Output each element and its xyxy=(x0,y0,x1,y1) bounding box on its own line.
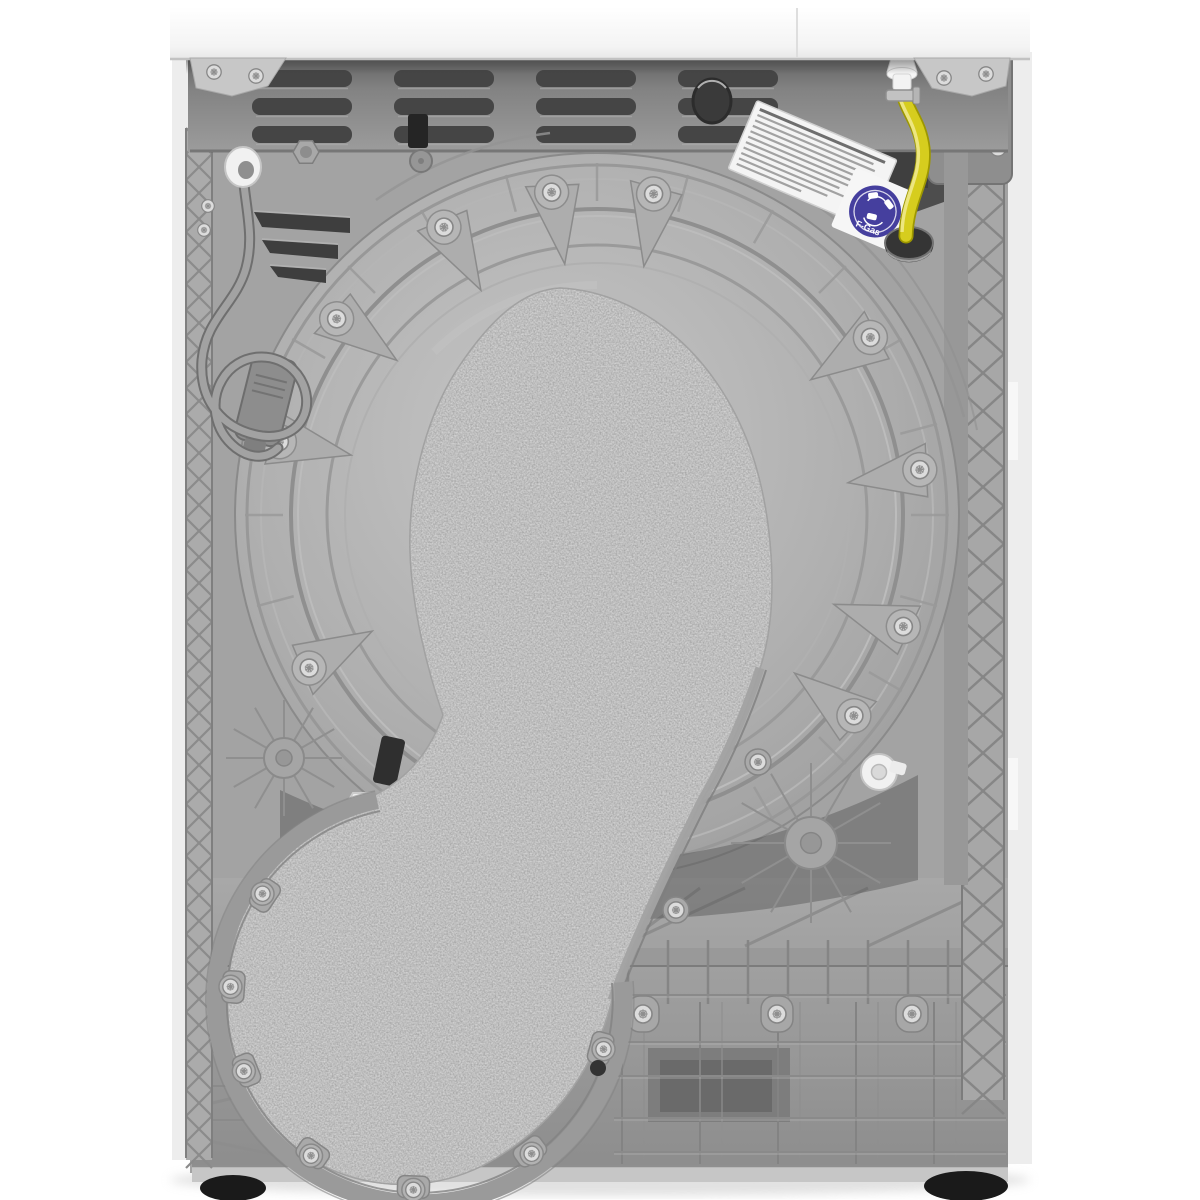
vent-slot xyxy=(394,98,494,115)
adjustable-foot-right xyxy=(924,1171,1008,1200)
disc-tab xyxy=(397,1175,430,1200)
cable-clip xyxy=(408,114,428,148)
base-recess-inner xyxy=(660,1060,772,1112)
under-lid-shadow xyxy=(186,58,1008,74)
knockout-hole xyxy=(693,79,731,123)
top-lid xyxy=(170,6,1030,60)
vent-slot xyxy=(536,98,636,115)
appliance-rear-photo: F-Gas xyxy=(0,0,1200,1200)
hose-clamp xyxy=(886,90,916,101)
rim-hole xyxy=(590,1060,606,1076)
right-lattice-strip xyxy=(962,88,1004,1100)
adjustable-foot-left xyxy=(200,1175,266,1200)
vent-slot xyxy=(536,126,636,143)
vent-slot xyxy=(252,98,352,115)
screenshot-root: F-Gas xyxy=(0,0,1200,1200)
